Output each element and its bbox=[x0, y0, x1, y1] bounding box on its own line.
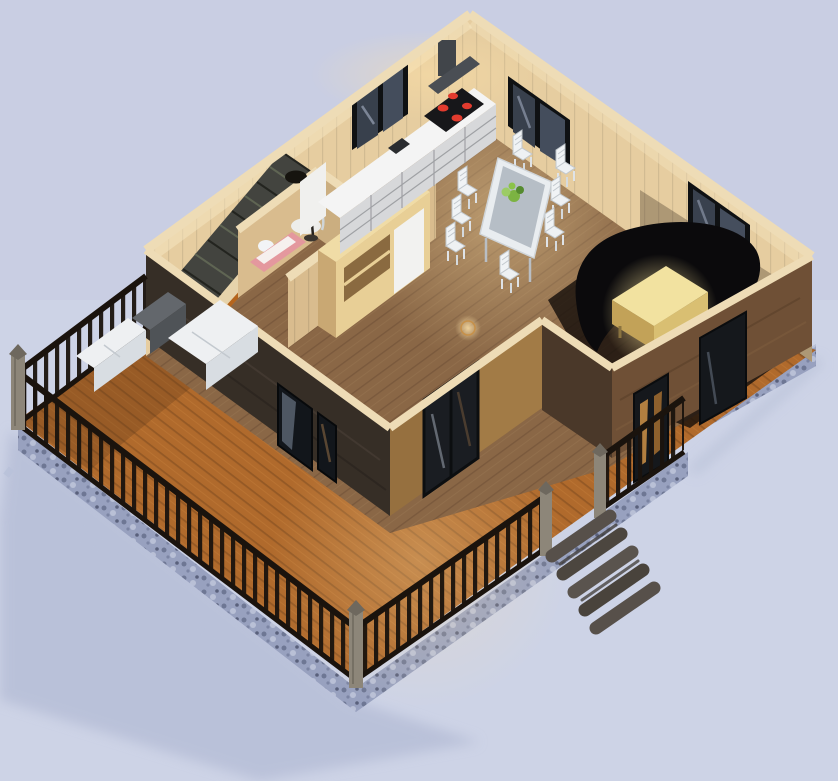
floorplan-3d-render bbox=[0, 0, 838, 781]
post-left-corner bbox=[9, 344, 27, 430]
floor-light-spot bbox=[455, 315, 481, 341]
post-front-corner bbox=[347, 600, 365, 688]
post-steps-left bbox=[538, 481, 554, 556]
lamp-base bbox=[304, 235, 318, 242]
post-steps-right bbox=[592, 443, 608, 518]
cabinet-side bbox=[318, 250, 336, 338]
render-canvas: Isometric 3D cutaway floor plan render o… bbox=[0, 0, 838, 781]
